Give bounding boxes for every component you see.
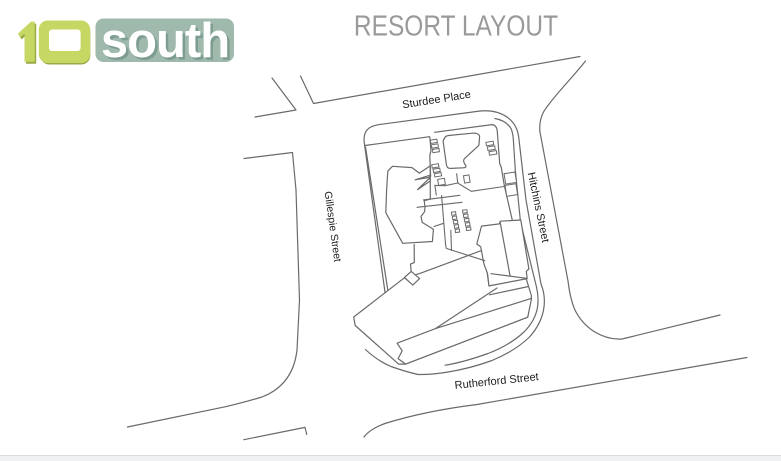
svg-text:south: south [101, 14, 229, 68]
svg-text:RESORT LAYOUT: RESORT LAYOUT [354, 10, 558, 42]
